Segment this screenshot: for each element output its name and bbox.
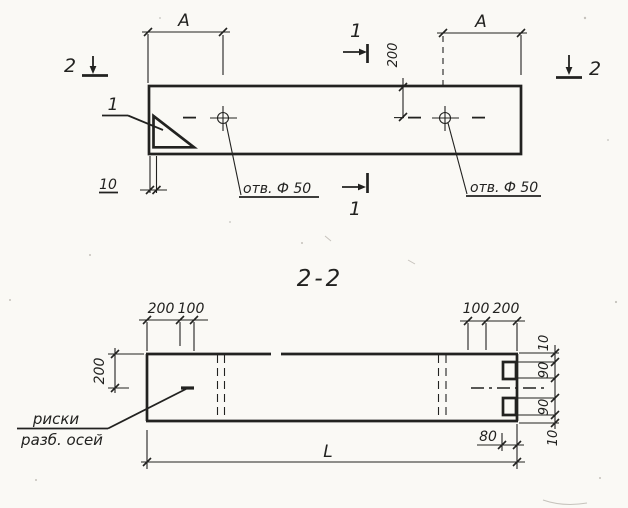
section-mark-2-right: 2	[556, 55, 601, 80]
notch-bottom	[503, 398, 516, 415]
arrowhead	[90, 66, 97, 74]
arrowhead	[358, 184, 366, 191]
dim-right-chain: 10 90 90 10	[518, 335, 561, 447]
section-mark-1-bottom: 1	[342, 173, 368, 220]
dim-top-right: 100 200	[460, 301, 525, 351]
dim-100-top-left-label: 100	[178, 301, 205, 317]
dim-a-right-label: A	[474, 12, 487, 32]
dim-200-top-right-label: 200	[493, 301, 520, 317]
section-1-bottom-label: 1	[349, 198, 361, 220]
dim-200-top-left-label: 200	[148, 301, 175, 317]
axis-note: риски разб. осей	[17, 389, 186, 449]
dim-200-left: 200	[92, 348, 144, 393]
dim-a-left: A	[142, 11, 230, 83]
section-beam-outline	[146, 354, 518, 421]
dim-a-left-label: A	[177, 11, 190, 31]
section-2-right-label: 2	[589, 58, 601, 80]
hole-note-left-label: отв. Ф 50	[243, 181, 311, 197]
arrowhead	[566, 67, 573, 75]
plan-beam-outline	[149, 86, 521, 154]
hole-note-right: отв. Ф 50	[448, 123, 541, 196]
axis-note-line1: риски	[32, 410, 80, 428]
dim-10-plan-label: 10	[99, 177, 117, 193]
axis-note-line2: разб. осей	[20, 431, 103, 449]
technical-drawing-sheet: A A 200 1	[0, 0, 628, 508]
section-1-top-label: 1	[350, 20, 362, 42]
scan-smudge	[543, 500, 587, 504]
arrowhead	[359, 49, 367, 56]
drawing-canvas: A A 200 1	[0, 0, 628, 508]
dim-80-label: 80	[479, 429, 497, 445]
section-view: 2-2	[17, 266, 561, 469]
dim-L-label: L	[323, 442, 332, 462]
dim-90-right-upper-label: 90	[537, 362, 552, 379]
dim-10-right-top-label: 10	[537, 335, 552, 352]
hole-note-right-label: отв. Ф 50	[470, 180, 538, 196]
plan-corner-triangle	[154, 116, 195, 147]
dim-200-plan-label: 200	[386, 43, 401, 68]
section-mark-2-left: 2	[64, 55, 108, 77]
detail-1-label: 1	[108, 95, 119, 115]
dim-90-right-lower-label: 90	[537, 399, 552, 416]
dim-100-top-right-label: 100	[463, 301, 490, 317]
scan-smudge	[325, 236, 331, 241]
joint-lines-left	[218, 355, 225, 420]
hole-note-left: отв. Ф 50	[226, 123, 319, 197]
plan-hole-left	[210, 106, 237, 131]
section-2-left-label: 2	[64, 55, 76, 77]
dim-10-plan: 10	[99, 156, 167, 194]
notch-top	[503, 362, 516, 379]
plan-hole-right	[432, 106, 459, 131]
dim-10-right-bottom-label: 10	[546, 430, 561, 447]
joint-lines-right	[439, 355, 447, 420]
section-mark-1-top: 1	[343, 20, 368, 63]
section-title: 2-2	[297, 266, 344, 292]
dim-200-left-label: 200	[92, 358, 108, 385]
dim-200-plan: 200	[386, 43, 407, 121]
dim-top-left: 200 100	[139, 301, 208, 351]
scan-smudge	[408, 260, 415, 264]
dim-a-right: A	[437, 12, 527, 86]
dim-length-L: L	[141, 424, 525, 469]
plan-view: A A 200 1	[64, 11, 601, 220]
